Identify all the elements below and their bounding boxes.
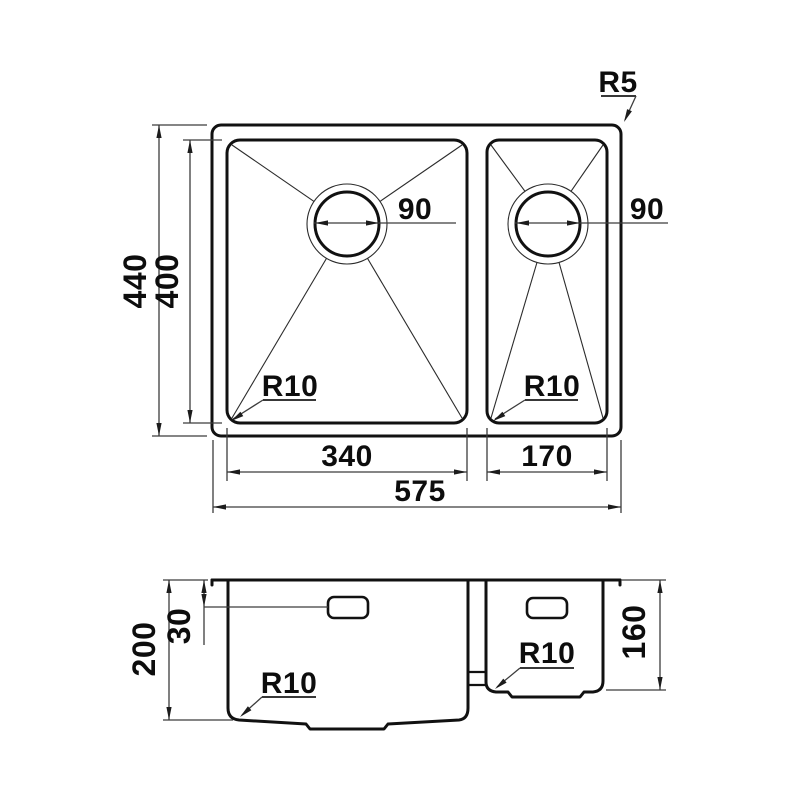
main-bowl-corner-radius-label: R10 (262, 370, 319, 403)
radius-callout-main-bowl: R10 (231, 370, 318, 421)
dim-main-depth: 200 (126, 580, 233, 720)
side-view: 200 30 160 R10 R10 (126, 580, 666, 729)
main-drain-diameter-label: 90 (398, 193, 432, 226)
main-bottom-radius-label: R10 (261, 667, 318, 700)
small-drain-diameter-label: 90 (630, 193, 664, 226)
overflow-offset-label: 30 (161, 608, 197, 645)
small-bowl-corner-radius-label: R10 (524, 370, 581, 403)
dim-overflow-offset: 30 (161, 580, 328, 645)
radius-callout-small-bowl: R10 (493, 370, 580, 421)
divider-web (468, 672, 486, 685)
radius-callout-small-bottom: R10 (495, 637, 575, 689)
small-overflow-hole (527, 598, 567, 618)
radius-callout-main-bottom: R10 (240, 667, 317, 717)
overall-depth-label: 440 (117, 254, 153, 309)
main-overflow-hole (328, 597, 368, 618)
bowl-depth-label: 400 (149, 254, 185, 309)
main-bowl-width-label: 340 (321, 440, 373, 473)
small-bottom-radius-label: R10 (519, 637, 576, 670)
radius-callout-outer-corner: R5 (598, 66, 637, 122)
small-drain (508, 184, 588, 264)
main-drain (307, 184, 387, 264)
sink-dimension-drawing: 90 90 440 400 (0, 0, 800, 800)
dim-small-drain: 90 (515, 193, 668, 226)
dim-small-depth: 160 (606, 580, 666, 690)
main-depth-label: 200 (126, 622, 162, 677)
top-view: 90 90 440 400 (117, 66, 668, 513)
overall-width-label: 575 (394, 475, 446, 508)
small-bowl-width-label: 170 (521, 440, 573, 473)
technical-drawing-page: 90 90 440 400 (0, 0, 800, 800)
small-depth-label: 160 (616, 605, 652, 660)
outer-corner-radius-label: R5 (598, 66, 637, 99)
